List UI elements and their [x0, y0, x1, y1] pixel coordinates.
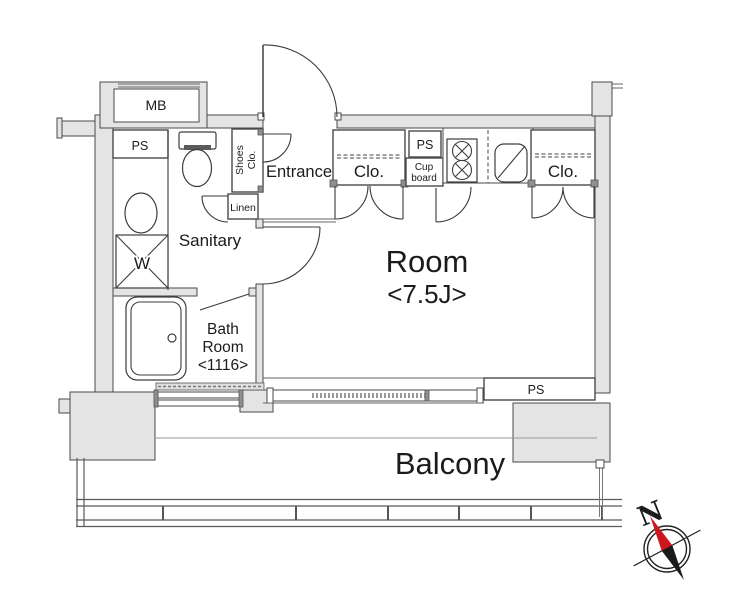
sanitary-door	[263, 227, 320, 284]
top-right-column	[592, 82, 612, 116]
bath-label-1: Bath	[207, 321, 239, 338]
ps-bottom-label: PS	[528, 383, 545, 397]
compass-north-label: N	[634, 495, 669, 533]
stove-icon	[447, 139, 477, 182]
closet-right: Clo.	[528, 130, 598, 218]
top-wall-right	[337, 115, 610, 128]
main-room: Room <7.5J>	[386, 244, 469, 309]
bottom-left-cap	[59, 399, 70, 413]
linen-label: Linen	[230, 202, 256, 214]
meter-box: MB	[100, 82, 207, 128]
closet-right-door-arc-l	[532, 187, 563, 218]
corridor-wall-lower	[256, 284, 263, 385]
bathtub-icon	[126, 297, 186, 380]
ps-top-label: PS	[132, 139, 149, 153]
bottom-left-pillar	[70, 392, 155, 460]
bath-room: Bath Room <1116>	[126, 294, 264, 390]
washing-machine-icon: W	[116, 235, 168, 288]
mb-label: MB	[146, 97, 167, 113]
kitchen-counter	[443, 128, 533, 183]
ps-kitchen-label: PS	[417, 138, 434, 152]
sanitary-label: Sanitary	[179, 231, 242, 250]
closet-left-label: Clo.	[354, 162, 384, 181]
sanitary-door-arc	[263, 227, 320, 284]
room-window	[263, 378, 484, 403]
cupboard-door-arc	[436, 187, 471, 222]
cupboard-label-1: Cup	[415, 162, 434, 173]
bath-door-leaf	[200, 294, 249, 310]
bottom-right-pillar	[513, 403, 610, 462]
bath-size-label: <1116>	[198, 357, 248, 374]
closet-left: Clo.	[330, 130, 408, 219]
left-wall	[95, 115, 113, 392]
sink-icon	[495, 144, 527, 182]
room-size-label: <7.5J>	[387, 279, 467, 309]
left-stub-cap	[57, 118, 62, 138]
shoes-label-1: Shoes	[234, 145, 246, 175]
front-door-arc	[263, 45, 337, 117]
closet-left-door-arc-r	[370, 186, 403, 219]
closet-right-label: Clo.	[548, 162, 578, 181]
washer-label: W	[134, 254, 150, 273]
shoes-door-arc	[263, 134, 291, 162]
left-wall-stub	[62, 121, 95, 136]
balcony-railing	[76, 458, 622, 527]
bath-partition-wall	[113, 288, 197, 296]
bath-window	[154, 390, 243, 407]
bath-label-2: Room	[202, 339, 243, 356]
room-label: Room	[386, 244, 469, 279]
front-door-jamb-right	[335, 113, 341, 120]
cupboard-label-2: board	[411, 173, 437, 184]
right-wall	[595, 115, 610, 393]
closet-right-door-arc-r	[563, 187, 594, 218]
closet-left-door-arc-l	[335, 186, 368, 219]
linen-door-arc	[202, 196, 228, 222]
compass-icon: N	[634, 495, 701, 580]
shoes-closet: Shoes Clo.	[232, 129, 291, 192]
drain-pipe	[596, 460, 604, 517]
entrance-label: Entrance	[266, 163, 332, 181]
pipe-space-bottom: PS	[484, 378, 595, 400]
pipe-space-kitchen: PS	[409, 131, 441, 157]
corridor-wall-upper	[256, 219, 263, 228]
shoes-label-2: Clo.	[246, 151, 258, 170]
washbasin-icon	[125, 193, 157, 233]
linen-closet: Linen	[202, 194, 258, 222]
balcony-label: Balcony	[395, 446, 506, 481]
floor-plan: MB PS W Sanitary Bath Room <111	[0, 0, 740, 598]
pipe-space-top: PS	[113, 130, 168, 158]
toilet-icon	[179, 132, 216, 187]
